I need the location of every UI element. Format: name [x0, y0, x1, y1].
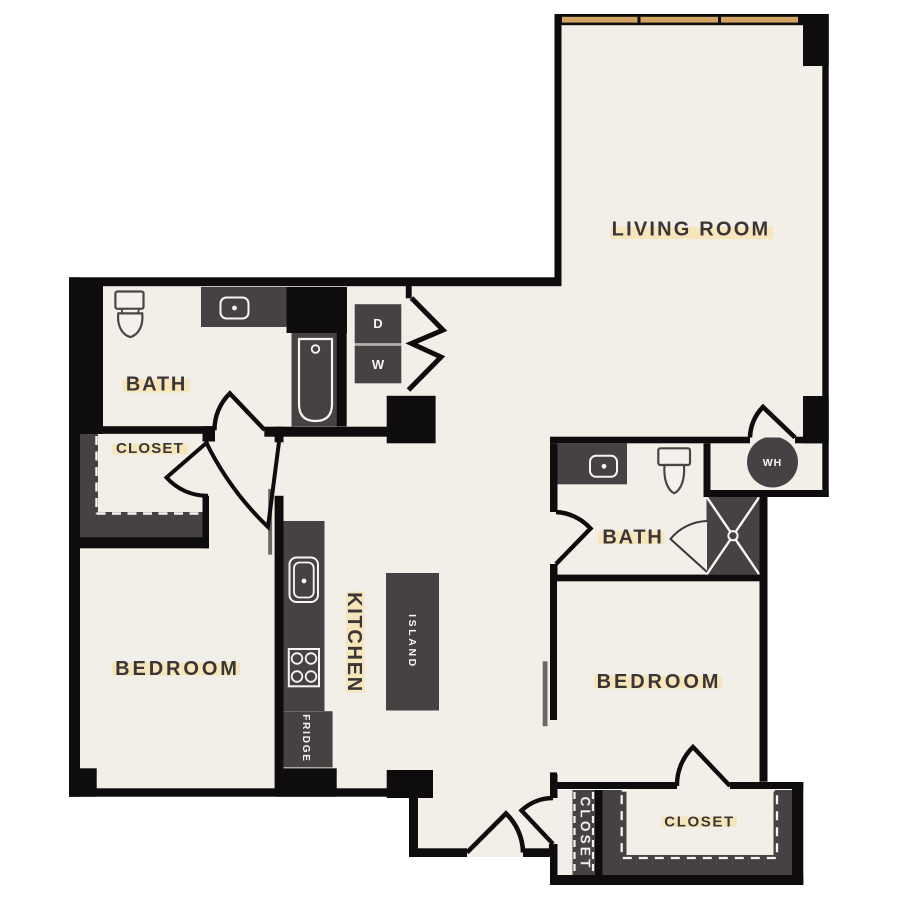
svg-text:CLOSET: CLOSET	[116, 440, 184, 457]
svg-text:FRIDGE: FRIDGE	[300, 714, 311, 763]
svg-text:D: D	[373, 316, 382, 331]
svg-text:LIVING ROOM: LIVING ROOM	[612, 219, 771, 241]
svg-text:WH: WH	[763, 457, 783, 469]
svg-text:BEDROOM: BEDROOM	[115, 658, 240, 680]
svg-text:KITCHEN: KITCHEN	[343, 592, 365, 693]
svg-text:BEDROOM: BEDROOM	[597, 671, 722, 693]
svg-text:BATH: BATH	[126, 374, 187, 396]
svg-text:W: W	[372, 357, 385, 372]
svg-text:BATH: BATH	[602, 527, 663, 549]
svg-text:CLOSET: CLOSET	[664, 814, 734, 831]
svg-text:CLOSET: CLOSET	[578, 797, 593, 871]
svg-text:ISLAND: ISLAND	[406, 614, 418, 669]
